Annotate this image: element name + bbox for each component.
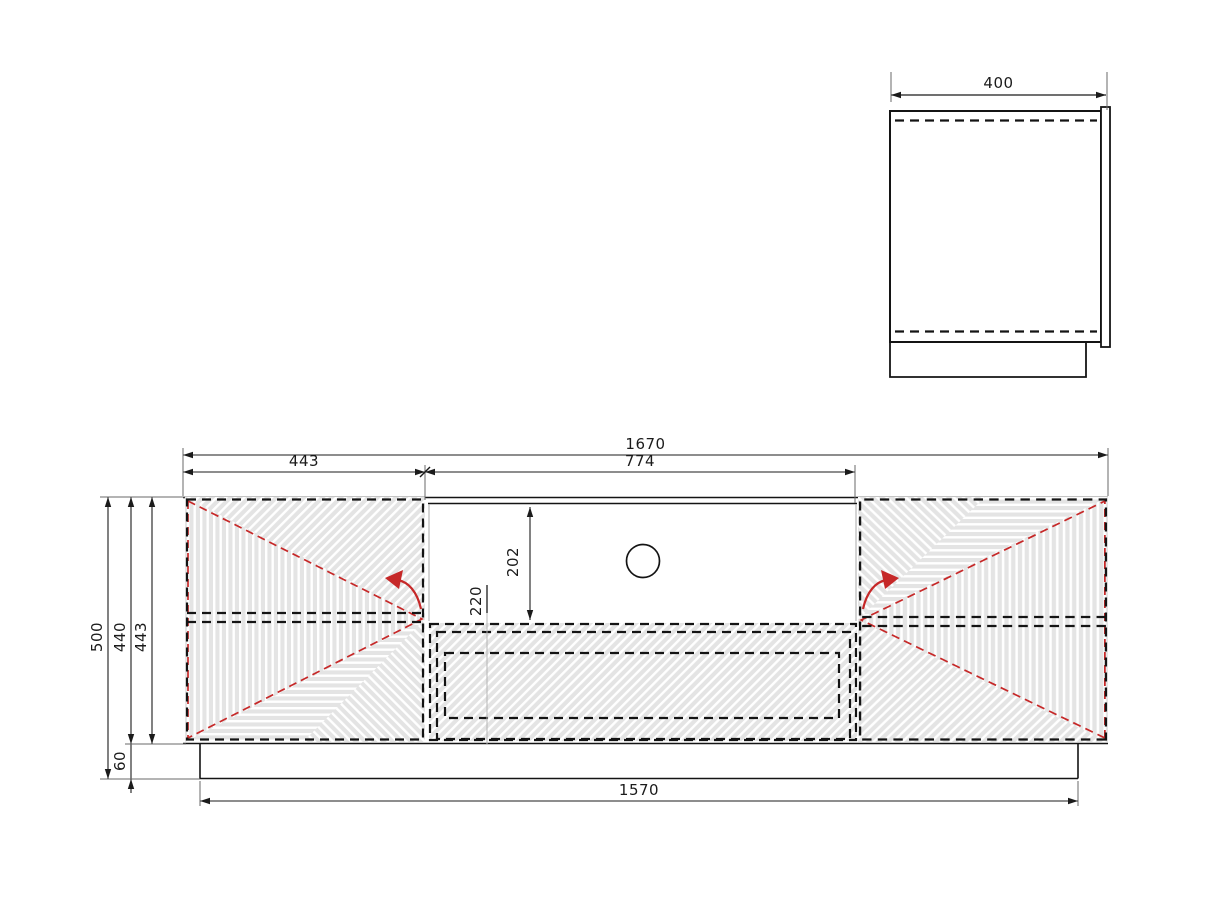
side-view	[890, 72, 1110, 377]
side-view-front-panel	[1101, 107, 1110, 347]
cable-hole-icon	[627, 545, 660, 578]
drawer[interactable]	[429, 613, 857, 744]
arrow-left-icon	[891, 92, 901, 98]
dim-base-width: 1570	[200, 782, 1078, 798]
dim-door-height: 443	[133, 615, 149, 659]
furniture-technical-drawing: 400 1670 443 774 202 220 500 440 443 60 …	[0, 0, 1214, 910]
dim-drawer-front-height: 220	[468, 579, 484, 623]
front-view	[100, 448, 1108, 806]
dim-middle-width: 774	[425, 453, 855, 469]
side-view-carcass	[890, 111, 1101, 342]
dim-overall-height: 500	[89, 615, 105, 659]
dim-overall-width: 1670	[183, 436, 1108, 452]
arrow-right-icon	[1096, 92, 1106, 98]
dim-carcass-height: 440	[112, 615, 128, 659]
front-plinth	[200, 744, 1078, 779]
dim-plinth-height: 60	[112, 739, 128, 783]
side-view-plinth	[890, 342, 1086, 377]
dim-left-door-width: 443	[183, 453, 425, 469]
right-door[interactable]	[858, 497, 1108, 742]
dim-niche-height: 202	[505, 540, 521, 584]
left-door[interactable]	[185, 497, 425, 742]
dim-side-depth: 400	[891, 75, 1106, 91]
